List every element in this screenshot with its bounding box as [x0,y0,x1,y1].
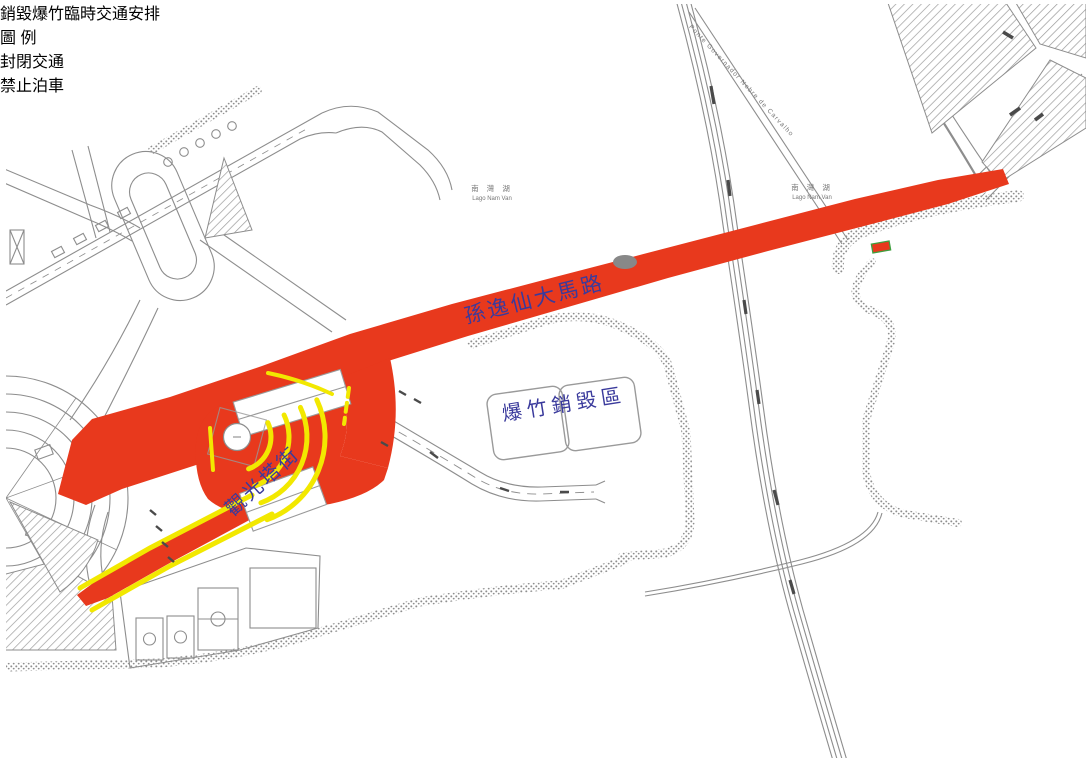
traffic-plan-page: 南 灣 湖 Lago Nam Van 南 灣 湖 Lago Nam Van Po… [0,0,1091,764]
page-border [5,3,1086,758]
